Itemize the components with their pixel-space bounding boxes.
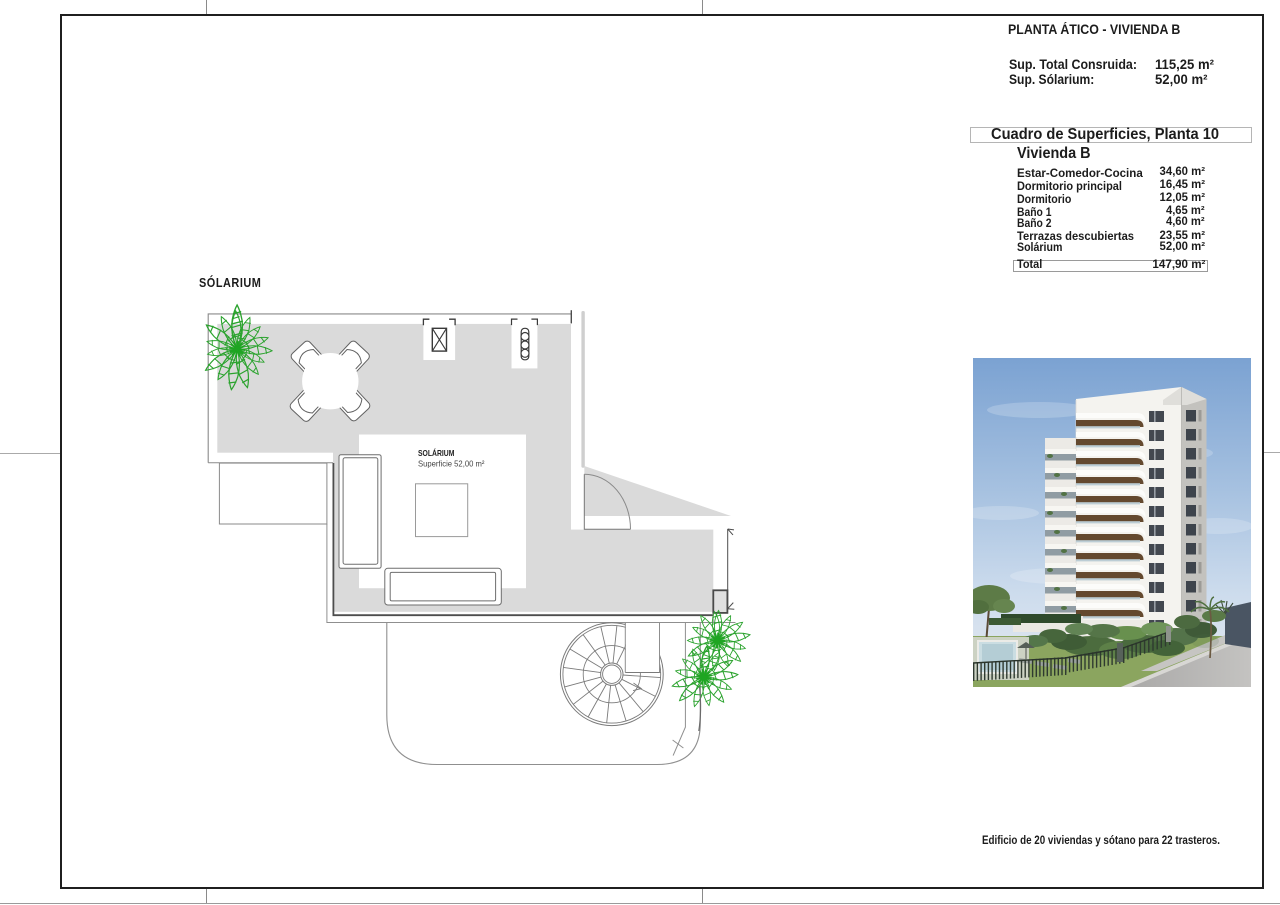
svg-text:SOLÁRIUM: SOLÁRIUM <box>418 448 455 458</box>
svg-text:Superficie 52,00 m²: Superficie 52,00 m² <box>418 458 485 468</box>
